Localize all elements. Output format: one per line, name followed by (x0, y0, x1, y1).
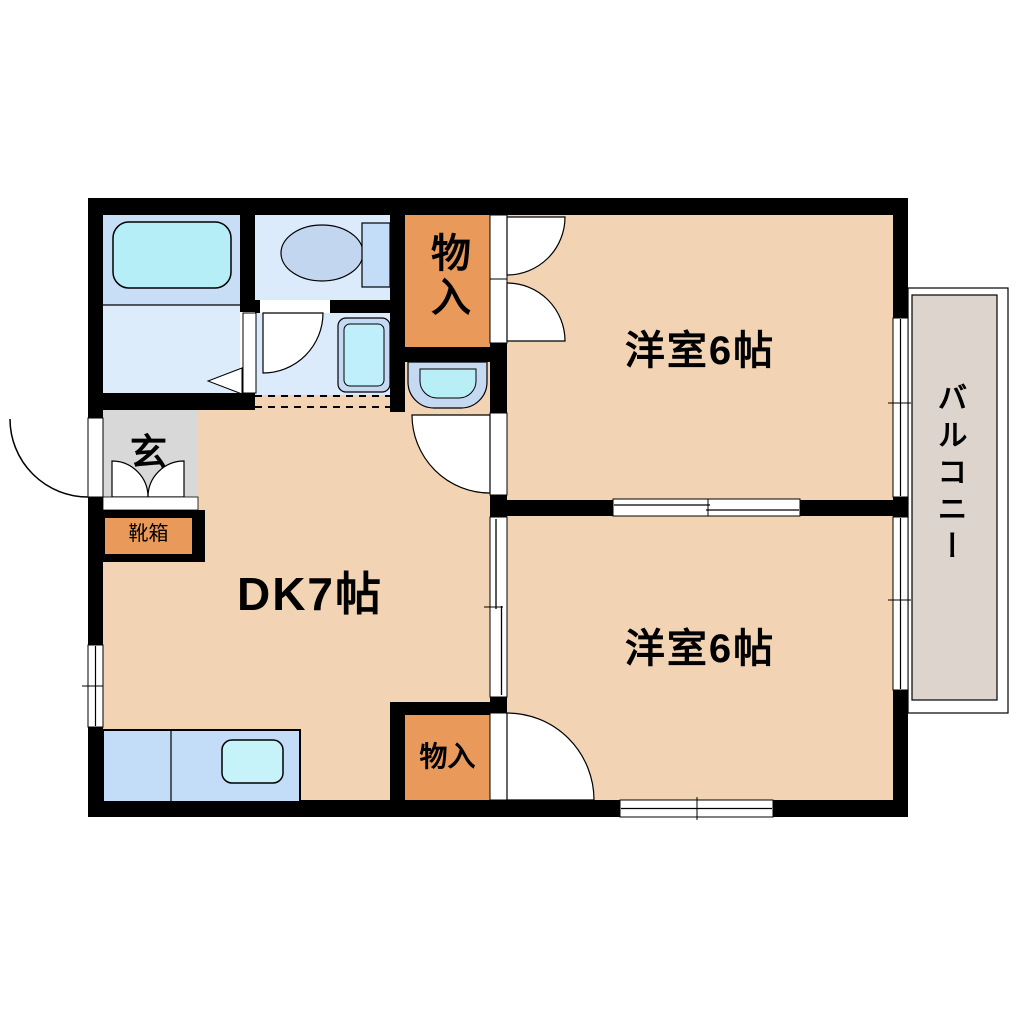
room-top-door-opening (490, 413, 507, 495)
wall-right (893, 198, 908, 817)
sliding-panel-rooms-divider (613, 499, 800, 516)
closet-top-label: 物入 (426, 232, 468, 344)
wall-bath-bottom (88, 393, 255, 410)
washing-machine (344, 324, 384, 386)
washbasin-bowl (420, 369, 476, 398)
closet-bottom-label: 物入 (405, 742, 490, 771)
wall-bath-toilet (240, 198, 255, 312)
floor-plan-drawing (0, 0, 1020, 1020)
wall-closet-top-bottom (390, 347, 507, 362)
wall-closet-bottom-top (390, 702, 507, 715)
floor-plan: 洋室6帖 洋室6帖 DK7帖 バルコニー 物入 物入 玄 靴箱 (0, 0, 1020, 1020)
entrance-door-arc (10, 419, 88, 497)
window-bottom-room (620, 797, 773, 820)
entrance-label: 玄 (130, 434, 167, 473)
window-left-dk (82, 645, 103, 727)
bathroom-door-leaf (243, 313, 256, 393)
room-top-right-label: 洋室6帖 (507, 330, 893, 372)
toilet-bowl (281, 225, 363, 281)
shoe-box-label: 靴箱 (105, 524, 192, 545)
bathtub (113, 222, 231, 288)
kitchen-sink (222, 740, 283, 783)
wall-closet-bottom-left (390, 702, 405, 812)
wall-washroom-closet (390, 198, 405, 412)
toilet-tank (362, 223, 390, 287)
closet-bottom-door-opening (490, 713, 507, 800)
entrance-step (103, 497, 198, 510)
balcony-label: バルコニー (933, 382, 965, 632)
dining-kitchen-label: DK7帖 (120, 570, 500, 618)
washroom-door-opening (260, 300, 330, 313)
entrance-door-opening (88, 418, 103, 497)
room-bottom-right-label: 洋室6帖 (507, 628, 893, 670)
